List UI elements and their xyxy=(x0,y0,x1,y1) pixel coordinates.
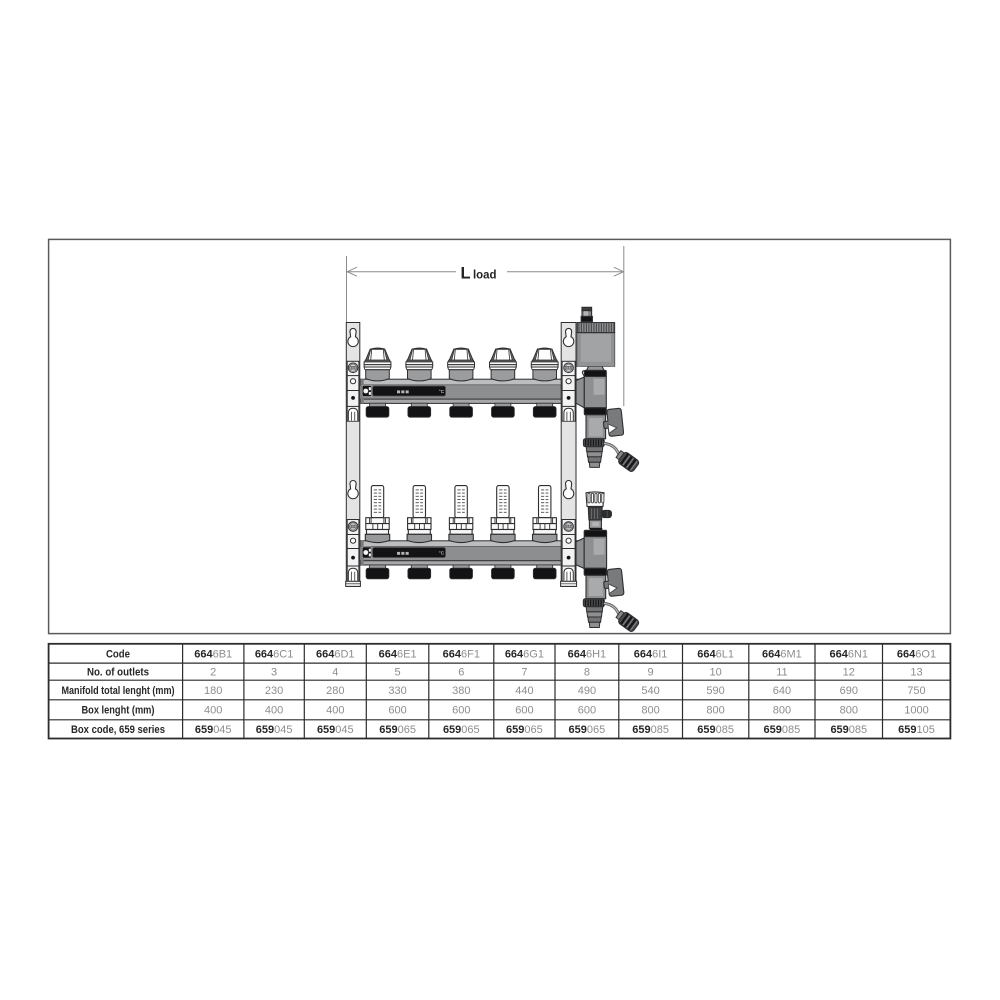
svg-text:280: 280 xyxy=(326,685,344,697)
svg-text:330: 330 xyxy=(388,685,406,697)
svg-text:659085: 659085 xyxy=(697,724,734,736)
svg-text:800: 800 xyxy=(706,705,724,717)
svg-text:230: 230 xyxy=(265,685,283,697)
svg-text:540: 540 xyxy=(641,685,659,697)
svg-text:590: 590 xyxy=(706,685,724,697)
svg-text:4: 4 xyxy=(332,667,338,679)
svg-text:659085: 659085 xyxy=(764,724,801,736)
svg-text:600: 600 xyxy=(388,705,406,717)
svg-text:800: 800 xyxy=(840,705,858,717)
svg-text:°C: °C xyxy=(439,551,445,556)
svg-text:6646I1: 6646I1 xyxy=(634,648,668,660)
svg-text:°C: °C xyxy=(439,389,445,394)
svg-text:180: 180 xyxy=(204,685,222,697)
svg-text:659085: 659085 xyxy=(830,724,867,736)
svg-text:659065: 659065 xyxy=(569,724,606,736)
svg-text:load: load xyxy=(473,270,497,282)
svg-text:6646D1: 6646D1 xyxy=(316,648,355,660)
svg-text:6646C1: 6646C1 xyxy=(255,648,294,660)
svg-text:750: 750 xyxy=(907,685,925,697)
svg-text:Box lenght (mm): Box lenght (mm) xyxy=(82,705,155,717)
svg-text:Code: Code xyxy=(106,648,130,660)
svg-text:6646O1: 6646O1 xyxy=(897,648,936,660)
svg-text:1000: 1000 xyxy=(904,705,928,717)
svg-text:440: 440 xyxy=(515,685,533,697)
svg-text:600: 600 xyxy=(515,705,533,717)
svg-text:11: 11 xyxy=(776,667,787,679)
svg-text:659045: 659045 xyxy=(256,724,293,736)
svg-text:659105: 659105 xyxy=(898,724,935,736)
svg-text:No. of outlets: No. of outlets xyxy=(87,667,149,679)
svg-text:L: L xyxy=(461,265,471,283)
svg-text:659065: 659065 xyxy=(379,724,416,736)
svg-text:659065: 659065 xyxy=(443,724,480,736)
svg-text:Box code, 659 series: Box code, 659 series xyxy=(71,724,165,736)
svg-text:400: 400 xyxy=(204,705,222,717)
svg-text:3: 3 xyxy=(271,667,277,679)
svg-text:9: 9 xyxy=(648,667,654,679)
svg-text:8: 8 xyxy=(584,667,590,679)
svg-text:2: 2 xyxy=(210,667,216,679)
svg-text:640: 640 xyxy=(773,685,791,697)
svg-text:Manifold total lenght (mm): Manifold total lenght (mm) xyxy=(62,685,175,697)
svg-text:6646F1: 6646F1 xyxy=(443,648,480,660)
svg-text:659085: 659085 xyxy=(632,724,669,736)
svg-text:659065: 659065 xyxy=(506,724,543,736)
svg-text:6646H1: 6646H1 xyxy=(568,648,607,660)
svg-text:659045: 659045 xyxy=(317,724,354,736)
svg-text:10: 10 xyxy=(709,667,721,679)
svg-text:490: 490 xyxy=(578,685,596,697)
svg-text:5: 5 xyxy=(395,667,401,679)
svg-text:12: 12 xyxy=(843,667,855,679)
svg-text:600: 600 xyxy=(452,705,470,717)
svg-text:400: 400 xyxy=(265,705,283,717)
svg-text:6646L1: 6646L1 xyxy=(697,648,734,660)
svg-text:7: 7 xyxy=(521,667,527,679)
svg-text:6646N1: 6646N1 xyxy=(830,648,869,660)
svg-text:800: 800 xyxy=(773,705,791,717)
svg-text:6646M1: 6646M1 xyxy=(762,648,802,660)
svg-text:6646B1: 6646B1 xyxy=(194,648,232,660)
svg-text:6: 6 xyxy=(458,667,464,679)
svg-text:690: 690 xyxy=(840,685,858,697)
svg-text:6646E1: 6646E1 xyxy=(379,648,417,660)
svg-text:400: 400 xyxy=(326,705,344,717)
svg-text:800: 800 xyxy=(641,705,659,717)
svg-text:659045: 659045 xyxy=(195,724,232,736)
svg-text:13: 13 xyxy=(910,667,922,679)
svg-text:380: 380 xyxy=(452,685,470,697)
svg-text:600: 600 xyxy=(578,705,596,717)
svg-text:6646G1: 6646G1 xyxy=(505,648,544,660)
